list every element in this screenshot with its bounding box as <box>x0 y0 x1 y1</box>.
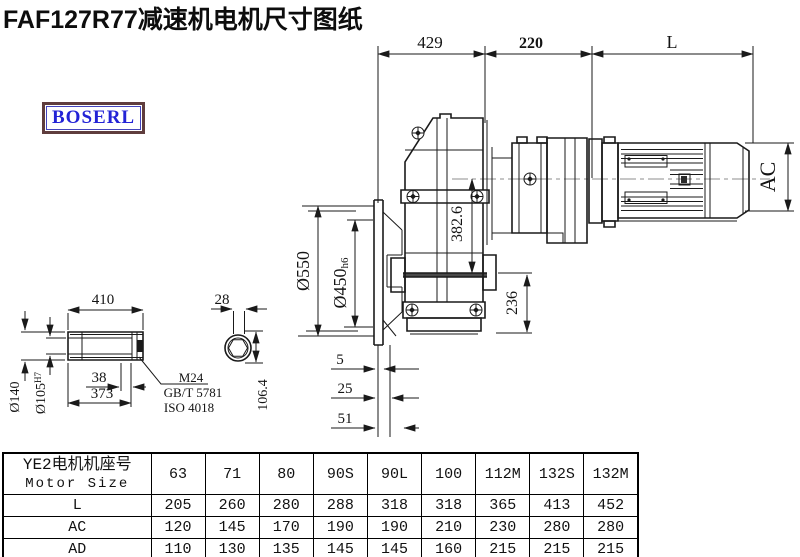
dim-410: 410 <box>68 292 143 310</box>
bolt-end-view-detail <box>225 335 251 361</box>
dim-38: 38 <box>86 370 146 387</box>
table-cell: 110 <box>151 539 205 557</box>
dim-28: 28 <box>211 292 267 309</box>
table-cell: 170 <box>259 517 313 539</box>
dim-51-label: 51 <box>338 411 353 427</box>
table-cell: 280 <box>530 517 584 539</box>
dim-51: 51 <box>331 411 419 428</box>
table-cell: 215 <box>476 539 530 557</box>
dim-429-label: 429 <box>417 33 443 52</box>
table-cell: 205 <box>151 495 205 517</box>
dim-AC: AC <box>755 143 788 211</box>
table-cell: 318 <box>422 495 476 517</box>
dim-L-label: L <box>667 32 678 52</box>
table-cell: 280 <box>584 517 638 539</box>
dim-25-label: 25 <box>338 381 353 397</box>
dim-450h6: Ø450h6 <box>330 220 355 327</box>
dim-25: 25 <box>331 381 419 398</box>
table-row-AD: AD 110 130 135 145 145 160 215 215 215 <box>3 539 638 557</box>
dim-373-label: 373 <box>91 386 114 402</box>
size-col-header: 80 <box>259 453 313 495</box>
dim-28-label: 28 <box>215 292 230 308</box>
table-cell: 280 <box>259 495 313 517</box>
table-cell: 130 <box>205 539 259 557</box>
bolt-gb-label: GB/T 5781 <box>164 385 223 400</box>
bolt-m24-label: M24 <box>179 370 204 385</box>
bolt-iso-label: ISO 4018 <box>164 400 214 415</box>
dim-5-label: 5 <box>336 352 344 368</box>
dim-373: 373 <box>68 386 131 403</box>
table-cell: 145 <box>367 539 421 557</box>
dim-38-label: 38 <box>92 370 107 386</box>
row-label: AC <box>3 517 151 539</box>
table-cell: 145 <box>313 539 367 557</box>
table-cell: 413 <box>530 495 584 517</box>
dim-382-label: 382.6 <box>449 206 466 242</box>
drawing-page: FAF127R77减速机电机尺寸图纸 BOSERL <box>0 0 800 557</box>
dim-410-label: 410 <box>92 292 115 308</box>
row-label: L <box>3 495 151 517</box>
table-cell: 260 <box>205 495 259 517</box>
dim-5: 5 <box>331 352 419 369</box>
table-cell: 365 <box>476 495 530 517</box>
dim-105H7-label: Ø105H7 <box>33 371 49 414</box>
dim-220-label: 220 <box>519 35 543 52</box>
dim-429: 429 <box>378 33 485 54</box>
size-col-header: 112M <box>476 453 530 495</box>
table-header-row: YE2电机机座号 Motor Size 63 71 80 90S 90L 100… <box>3 453 638 495</box>
gearbox-housing <box>391 114 496 334</box>
output-flange <box>300 200 402 437</box>
table-cell: 318 <box>367 495 421 517</box>
table-row-L: L 205 260 280 288 318 318 365 413 452 <box>3 495 638 517</box>
dim-L: L <box>592 32 753 54</box>
hollow-shaft-detail <box>68 332 143 360</box>
bolt-icon <box>471 191 483 203</box>
dim-382: 382.6 <box>449 179 472 273</box>
dim-550: Ø550 <box>293 206 318 336</box>
bolt-icon <box>406 304 418 316</box>
dim-236-label: 236 <box>504 291 521 315</box>
table-cell: 160 <box>422 539 476 557</box>
table-cell: 145 <box>205 517 259 539</box>
table-cell: 190 <box>313 517 367 539</box>
size-col-header: 90S <box>313 453 367 495</box>
size-col-header: 132S <box>530 453 584 495</box>
bolt-callout: M24 GB/T 5781 ISO 4018 <box>164 370 223 415</box>
dim-AC-label: AC <box>755 162 780 193</box>
table-cell: 120 <box>151 517 205 539</box>
size-col-header: 132M <box>584 453 638 495</box>
dim-106-label: 106.4 <box>256 379 271 411</box>
motor-size-header-cn: YE2电机机座号 <box>4 456 151 475</box>
motor-size-header-cell: YE2电机机座号 Motor Size <box>3 453 151 495</box>
size-col-header: 63 <box>151 453 205 495</box>
bolt-icon <box>524 173 536 185</box>
table-cell: 135 <box>259 539 313 557</box>
electric-motor <box>589 137 749 227</box>
motor-adapter <box>487 120 587 245</box>
dim-140-label: Ø140 <box>8 381 23 412</box>
table-cell: 190 <box>367 517 421 539</box>
size-col-header: 100 <box>422 453 476 495</box>
size-col-header: 90L <box>367 453 421 495</box>
dim-140: Ø140 <box>8 311 25 413</box>
dim-550-label: Ø550 <box>293 251 313 291</box>
bolt-icon <box>407 191 419 203</box>
dim-450h6-label: Ø450h6 <box>330 257 351 309</box>
table-cell: 210 <box>422 517 476 539</box>
table-cell: 215 <box>530 539 584 557</box>
dim-220: 220 <box>485 35 592 54</box>
table-cell: 215 <box>584 539 638 557</box>
table-cell: 452 <box>584 495 638 517</box>
size-col-header: 71 <box>205 453 259 495</box>
dim-236: 236 <box>504 275 527 332</box>
bolt-icon <box>470 304 482 316</box>
table-row-AC: AC 120 145 170 190 190 210 230 280 280 <box>3 517 638 539</box>
bolt-icon <box>412 127 424 139</box>
table-cell: 288 <box>313 495 367 517</box>
table-cell: 230 <box>476 517 530 539</box>
row-label: AD <box>3 539 151 557</box>
motor-size-table: YE2电机机座号 Motor Size 63 71 80 90S 90L 100… <box>2 452 639 557</box>
dim-106: 106.4 <box>256 332 271 411</box>
motor-size-header-en: Motor Size <box>4 475 151 493</box>
